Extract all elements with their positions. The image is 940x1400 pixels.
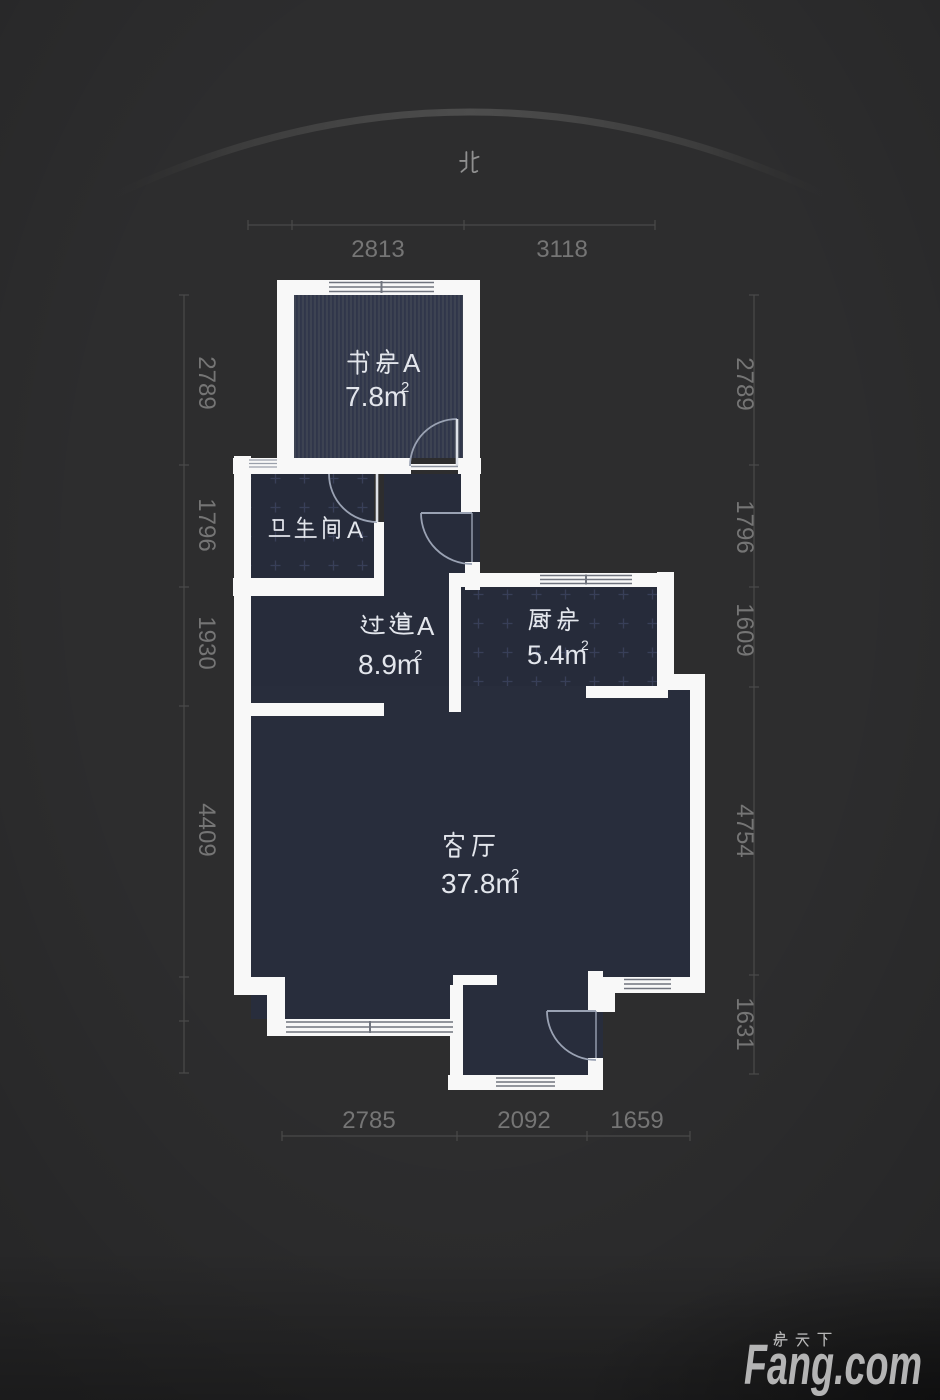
svg-text:1631: 1631: [731, 997, 758, 1050]
svg-text:1659: 1659: [610, 1107, 663, 1134]
svg-text:2: 2: [401, 379, 409, 396]
svg-text:37.8m: 37.8m: [441, 868, 519, 899]
svg-text:7.8m: 7.8m: [345, 381, 407, 412]
svg-text:2813: 2813: [351, 236, 404, 263]
svg-text:1609: 1609: [731, 603, 758, 656]
svg-text:Fang.com: Fang.com: [744, 1333, 922, 1397]
svg-text:2: 2: [581, 637, 589, 653]
svg-text:A: A: [403, 348, 421, 378]
svg-text:5.4m: 5.4m: [527, 640, 587, 670]
svg-text:2789: 2789: [193, 356, 220, 409]
svg-text:1796: 1796: [193, 498, 220, 551]
svg-text:2789: 2789: [731, 357, 758, 410]
svg-text:4409: 4409: [193, 803, 220, 856]
svg-text:3118: 3118: [536, 236, 588, 263]
svg-text:A: A: [347, 517, 363, 544]
svg-text:2785: 2785: [342, 1107, 395, 1134]
svg-text:1796: 1796: [731, 500, 758, 553]
svg-text:2: 2: [511, 866, 519, 883]
svg-text:2092: 2092: [497, 1107, 550, 1134]
svg-text:4754: 4754: [731, 804, 758, 857]
svg-text:A: A: [417, 611, 435, 641]
svg-text:8.9m: 8.9m: [358, 649, 420, 680]
svg-text:2: 2: [414, 647, 422, 664]
svg-text:1930: 1930: [193, 616, 220, 669]
